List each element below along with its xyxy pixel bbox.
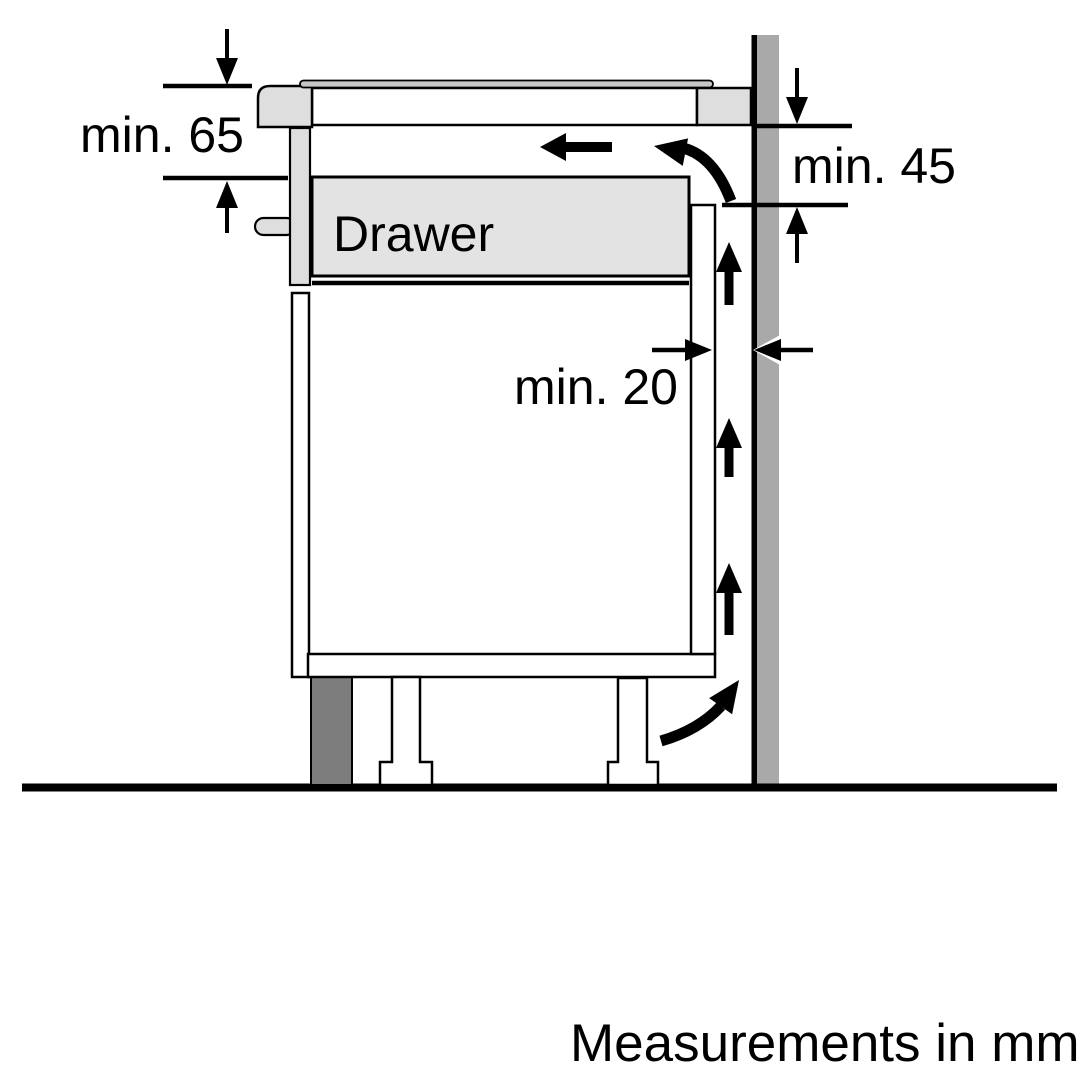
dim-45-down-arrow-icon <box>786 97 808 124</box>
installation-diagram: Drawer min. 65 min. 45 min. 20 <box>0 0 1080 1080</box>
plinth-panel <box>311 677 352 785</box>
footer-label: Measurements in mm <box>570 1014 1080 1073</box>
wall-surface <box>757 35 779 785</box>
cabinet-leg-back <box>608 678 658 785</box>
airflow-left-arrow-icon <box>540 133 566 161</box>
cabinet-back-panel <box>691 205 715 654</box>
wall <box>752 35 780 785</box>
airflow-gap-arrow-1-icon <box>716 242 742 272</box>
diagram-canvas: Drawer min. 65 min. 45 min. 20 <box>0 0 1080 1080</box>
cabinet-front-rail <box>290 128 310 285</box>
dim-65-up-arrow-icon <box>216 181 238 208</box>
dim-65-label: min. 65 <box>80 107 244 163</box>
floor-line <box>22 784 1057 792</box>
dimension-min-65: min. 65 <box>80 29 288 233</box>
hob-body <box>312 88 697 125</box>
hob-glass-top <box>300 81 713 88</box>
worktop-front-section <box>258 86 312 127</box>
drawer-label: Drawer <box>333 206 494 262</box>
airflow-gap-arrow-3-icon <box>716 563 742 593</box>
airflow-gap-arrow-2-icon <box>716 418 742 448</box>
cabinet-bottom-panel <box>308 654 715 677</box>
wall-edge-line <box>752 35 758 785</box>
dim-45-up-arrow-icon <box>786 207 808 234</box>
cabinet-front-panel <box>292 293 309 677</box>
worktop-back-section <box>697 88 751 125</box>
dim-20-label: min. 20 <box>514 359 678 415</box>
dim-65-down-arrow-icon <box>216 58 238 85</box>
airflow-bottom-curve <box>661 706 721 741</box>
cabinet-leg-front <box>380 677 432 785</box>
airflow-top-curve-arrow-icon <box>651 132 688 166</box>
dim-45-label: min. 45 <box>792 138 956 194</box>
